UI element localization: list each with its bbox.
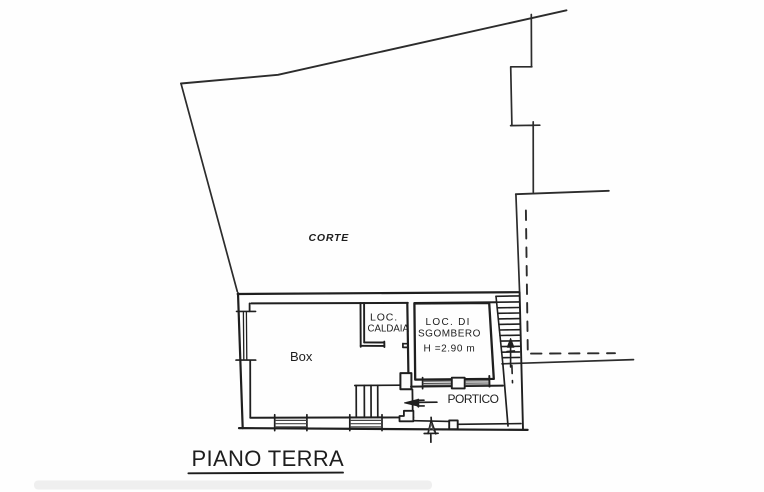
svg-text:Box: Box — [290, 349, 313, 364]
svg-text:LOC. DI: LOC. DI — [426, 317, 471, 328]
svg-text:CORTE: CORTE — [309, 232, 350, 244]
svg-text:CALDAIA: CALDAIA — [368, 324, 410, 335]
svg-text:PORTICO: PORTICO — [448, 392, 499, 406]
svg-text:SGOMBERO: SGOMBERO — [418, 329, 481, 340]
svg-text:H =2.90 m: H =2.90 m — [424, 344, 476, 355]
svg-text:PIANO TERRA: PIANO TERRA — [192, 446, 345, 471]
svg-text:LOC.: LOC. — [370, 312, 398, 324]
